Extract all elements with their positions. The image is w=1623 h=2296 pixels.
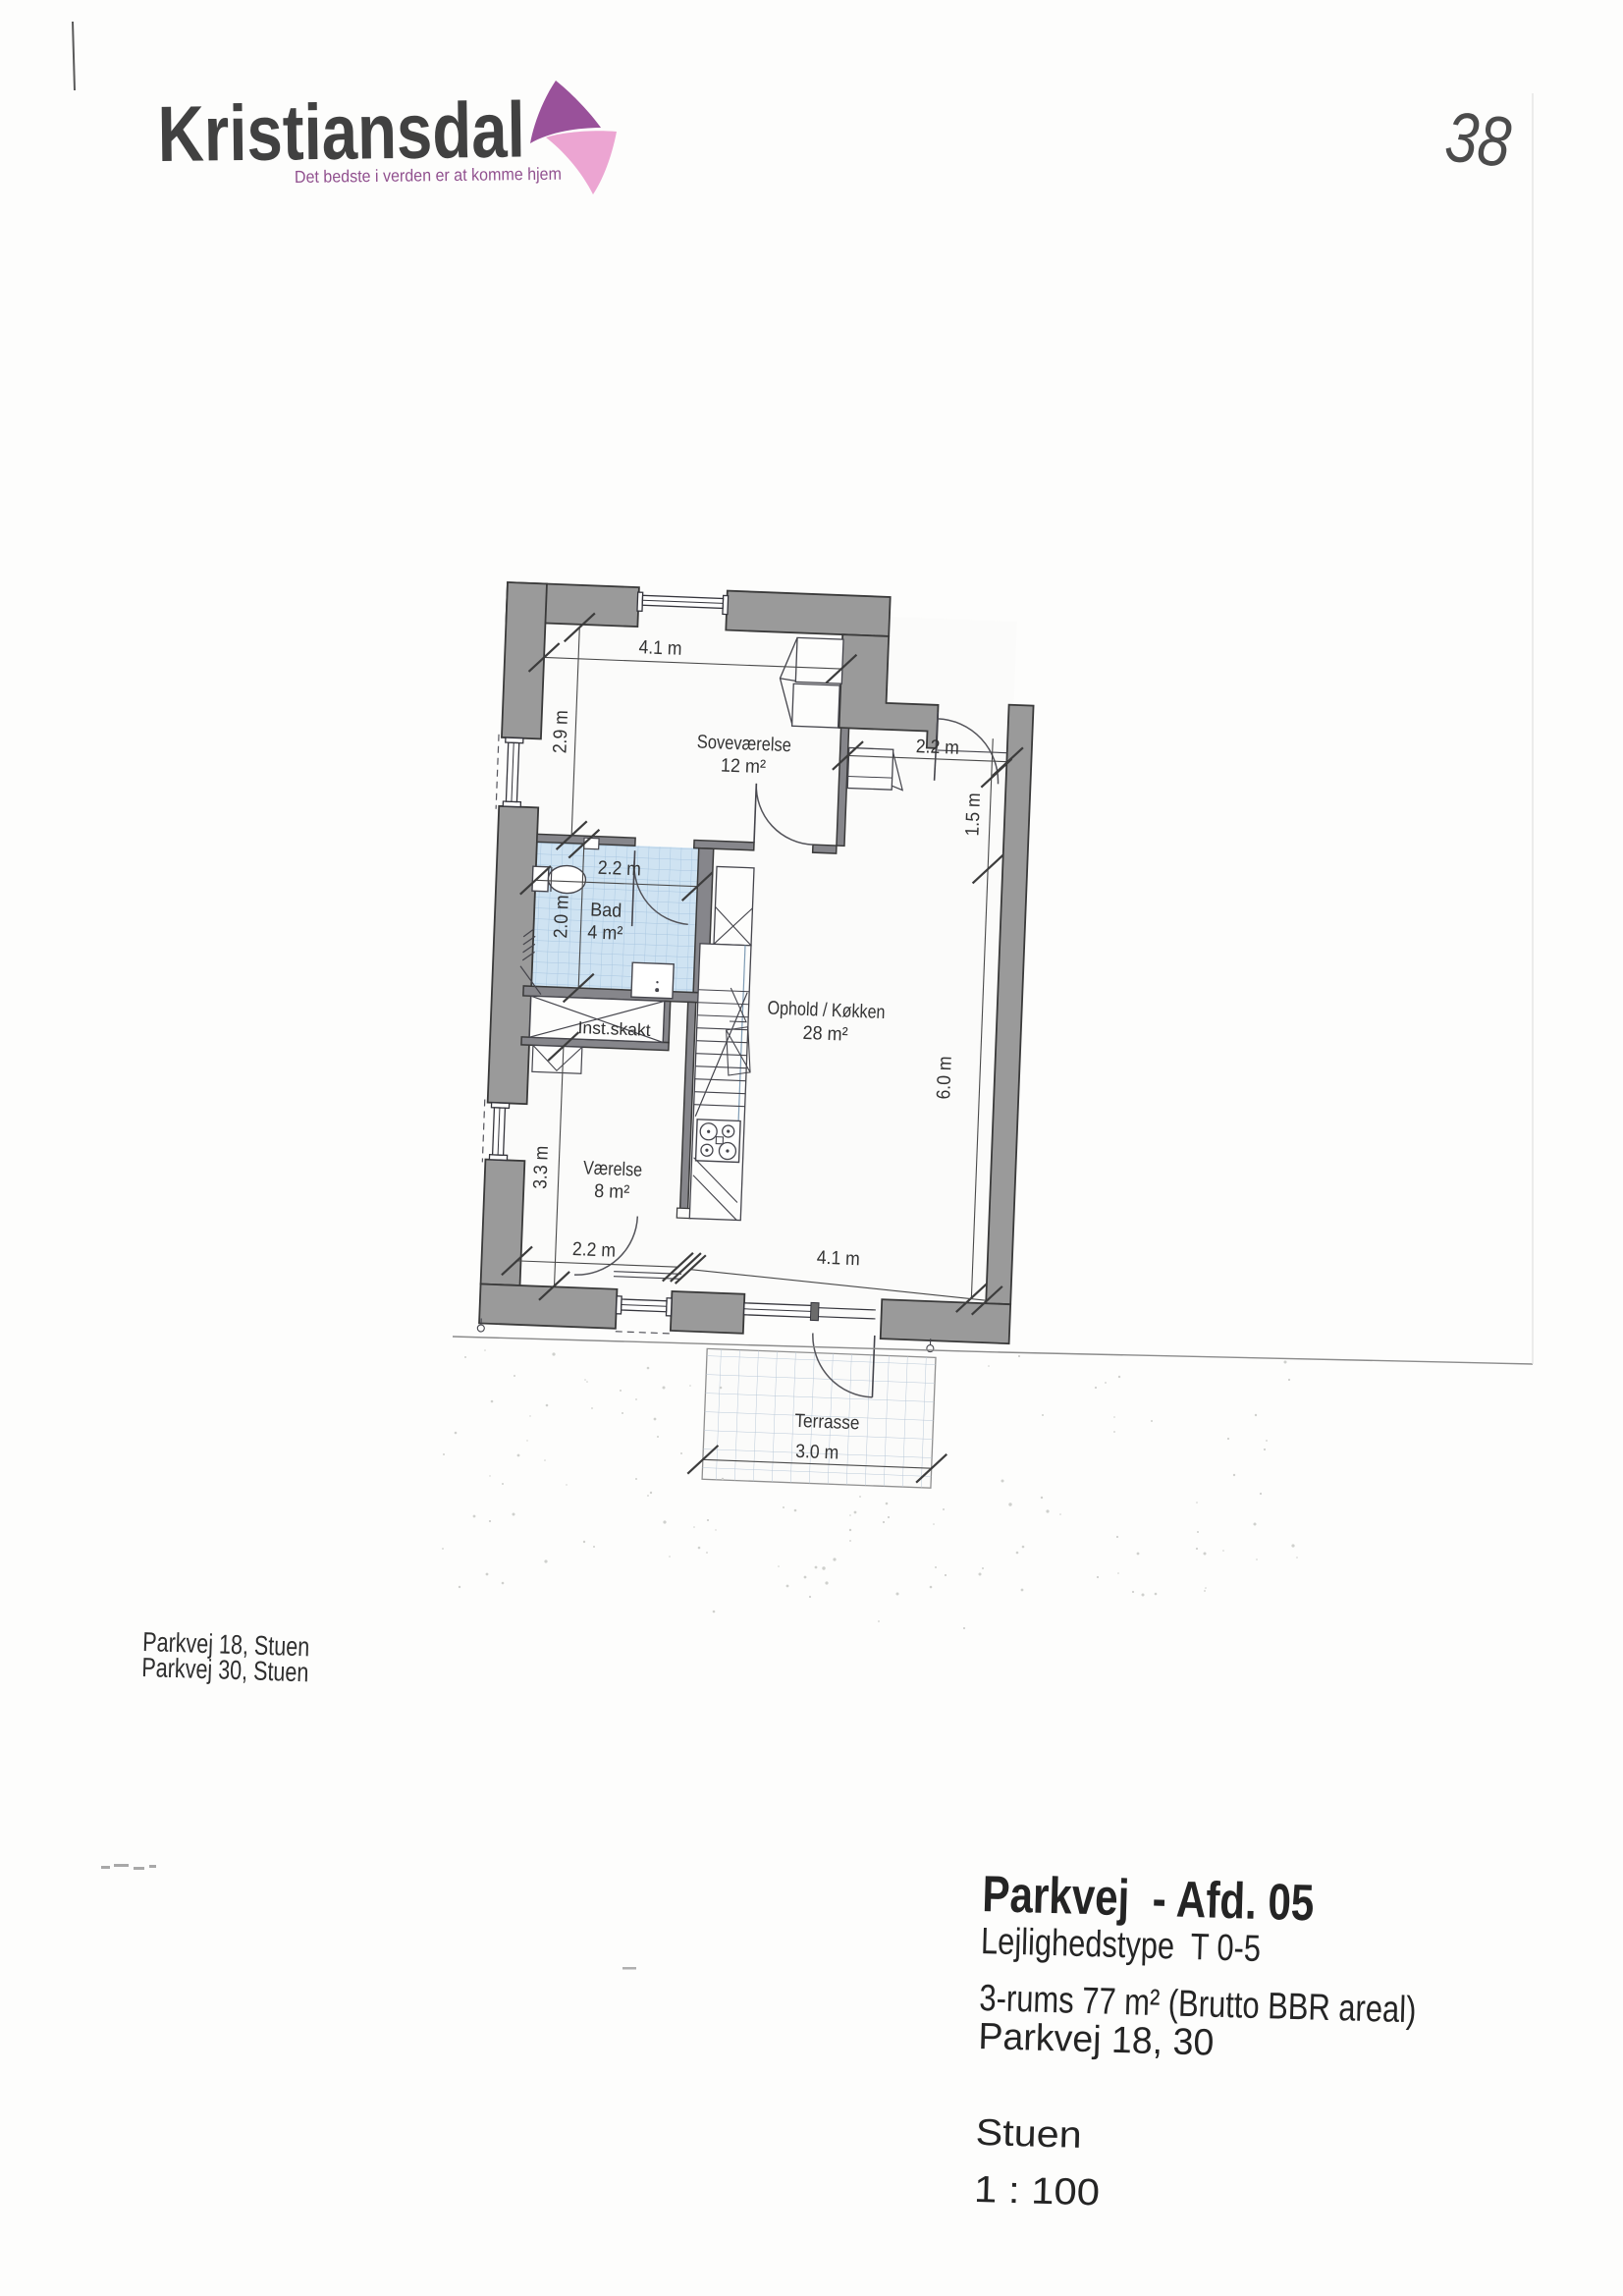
svg-text:2.0 m: 2.0 m [550,895,573,939]
svg-text:Stuen: Stuen [975,2112,1082,2157]
svg-text:6.0 m: 6.0 m [933,1056,956,1100]
svg-text:3.3 m: 3.3 m [529,1145,553,1189]
svg-text:Inst.skakt: Inst.skakt [577,1017,651,1040]
svg-text:12 m²: 12 m² [721,754,767,778]
svg-text:Parkvej 18, 30: Parkvej 18, 30 [978,2016,1215,2064]
svg-text:Ophold / Køkken: Ophold / Køkken [767,997,886,1023]
svg-text:38: 38 [1441,97,1514,182]
svg-text:4 m²: 4 m² [587,921,623,944]
svg-text:8 m²: 8 m² [594,1180,630,1203]
svg-text:4.1 m: 4.1 m [816,1247,860,1271]
svg-text:Lejlighedstype T 0-5: Lejlighedstype T 0-5 [981,1921,1262,1970]
svg-text:2.2 m: 2.2 m [597,857,641,881]
svg-text:Parkvej 30, Stuen: Parkvej 30, Stuen [141,1652,309,1687]
svg-text:2.2 m: 2.2 m [915,736,959,759]
svg-text:Terrasse: Terrasse [794,1410,860,1435]
svg-text:3.0 m: 3.0 m [795,1441,839,1464]
svg-text:2.9 m: 2.9 m [549,710,572,754]
svg-text:Værelse: Værelse [583,1157,643,1180]
svg-text:2.2 m: 2.2 m [572,1238,617,1262]
svg-text:1 : 100: 1 : 100 [973,2169,1100,2214]
svg-text:4.1 m: 4.1 m [638,636,682,660]
svg-text:1.5 m: 1.5 m [961,793,985,837]
svg-text:28 m²: 28 m² [802,1022,848,1046]
svg-text:Bad: Bad [590,899,622,921]
svg-text:Det bedste i verden er at komm: Det bedste i verden er at komme hjem [295,164,562,187]
svg-text:Soveværelse: Soveværelse [696,732,791,757]
